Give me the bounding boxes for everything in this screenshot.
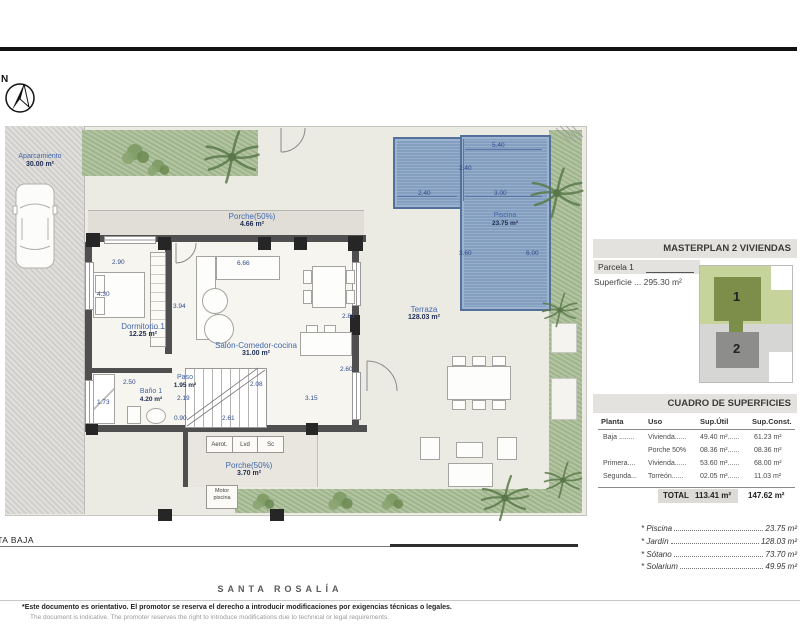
extra-value: 128.03 m² (761, 537, 797, 546)
outdoor-chair (492, 400, 506, 410)
table-cell: 08.36 m²...... (700, 447, 739, 454)
extra-label: * Solarium (641, 562, 678, 571)
dining-table (312, 266, 346, 308)
dimension-label: 2.50 (123, 379, 136, 386)
table-header-uso: Uso (648, 417, 662, 426)
table-cell: 02.05 m²...... (700, 473, 739, 480)
outdoor-chair (452, 400, 466, 410)
table-cell: Baja ........ (603, 434, 635, 441)
table-cell: 49.40 m²...... (700, 434, 739, 441)
bathroom-sink (127, 406, 141, 424)
dotted-leader (680, 561, 764, 569)
cabinet-secadora: Sc (258, 437, 283, 452)
dimension-label: 2.60 (340, 366, 353, 373)
room-area: 128.03 m² (394, 314, 454, 322)
cabinet-aerotermia: Aerot. (207, 437, 233, 452)
extra-row-piscina: * Piscina23.75 m² (641, 523, 797, 533)
stool (306, 325, 318, 333)
brand-name: SANTA ROSALÍA (180, 584, 380, 594)
pillow (95, 297, 105, 315)
table-cell: Segunda... (603, 473, 637, 480)
table-cell: Primera.... (603, 460, 635, 467)
cabinet-lavadora: Lvd (233, 437, 259, 452)
room-name: Dormitorio 1 (98, 322, 188, 331)
pillar (270, 509, 284, 521)
toilet (146, 408, 166, 424)
coffee-table-round (202, 288, 228, 314)
dimension-label: 3.00 (494, 190, 507, 197)
room-area: 4.66 m² (207, 221, 297, 229)
pillar (294, 237, 307, 250)
lounge-coffee-table (456, 442, 483, 458)
room-label-terraza: Terraza 128.03 m² (394, 305, 454, 322)
room-label-salon: Salón-Comedor-cocina 31.00 m² (196, 341, 316, 358)
table-cell: 08.36 m² (754, 447, 782, 454)
pillar (348, 236, 363, 251)
window (352, 372, 361, 420)
pool-shallow-section (393, 137, 464, 209)
dimension-label: 2.19 (177, 395, 190, 402)
outdoor-chair (492, 356, 506, 366)
room-name: Aparcamiento (8, 153, 72, 161)
disclaimer-english: The document is indicative. The promoter… (30, 614, 389, 621)
lounge-armchair (420, 437, 440, 460)
extra-label: * Jardín (641, 537, 669, 546)
window (104, 236, 156, 244)
outdoor-chair (472, 400, 486, 410)
room-name: Paso (168, 374, 202, 382)
wall-bathroom-divider (85, 368, 172, 373)
dotted-leader (674, 523, 763, 531)
dimension-label: 5.40 (492, 142, 505, 149)
room-label-piscina: Piscina 23.75 m² (475, 212, 535, 228)
north-compass-icon: N (1, 74, 34, 112)
floor-plan-title: PLANTA BAJA (0, 535, 34, 545)
extra-label: * Piscina (641, 524, 672, 533)
pillar (306, 423, 318, 435)
pool-motor-box: Motor piscina (206, 485, 238, 509)
room-area: 23.75 m² (475, 220, 535, 227)
room-name: Porche(50%) (207, 212, 297, 221)
superficie-label: Superficie ... 295.30 m² (594, 277, 682, 287)
outdoor-dining-table (447, 366, 511, 400)
dimension-label: 2.90 (112, 259, 125, 266)
lounge-sofa (448, 463, 493, 487)
pillar (258, 237, 271, 250)
dimension-label: 2.83 (342, 313, 355, 320)
room-label-porche-top: Porche(50%) 4.66 m² (207, 212, 297, 229)
pillar (86, 233, 100, 247)
table-header-sup-util: Sup.Útil (700, 417, 728, 426)
extra-value: 23.75 m² (765, 524, 797, 533)
room-name: Baño 1 (126, 388, 176, 396)
dimension-label: 3.94 (173, 303, 186, 310)
parking-area (5, 126, 85, 514)
planter-box (551, 323, 577, 353)
utility-cabinets: Aerot. Lvd Sc (206, 436, 284, 453)
pillar (158, 509, 172, 521)
total-label: TOTAL (663, 491, 689, 500)
table-cell: 68.00 m² (754, 460, 782, 467)
table-cell: 53.60 m²...... (700, 460, 739, 467)
room-label-dormitorio: Dormitorio 1 12.25 m² (98, 322, 188, 339)
dimension-label: 1.73 (97, 399, 110, 406)
room-name: Terraza (394, 305, 454, 314)
table-cell: 61.23 m² (754, 434, 782, 441)
extra-label: * Sótano (641, 550, 672, 559)
coffee-table-round (204, 314, 234, 344)
dimension-label: 2.08 (250, 381, 263, 388)
dimension-label: 2.40 (459, 165, 472, 172)
wall-rear-porch (183, 432, 188, 487)
room-name: Porche(50%) (204, 461, 294, 470)
room-name: Piscina (475, 212, 535, 220)
total-util-value: 113.41 m² (695, 491, 731, 500)
table-cell: Porche 50% (648, 447, 686, 454)
pillar (86, 423, 98, 435)
table-cell: Vivienda...... (648, 434, 686, 441)
dotted-leader (674, 549, 764, 557)
room-label-porche-bottom: Porche(50%) 3.70 m² (204, 461, 294, 478)
north-letter: N (1, 74, 8, 85)
extra-row-jardin: * Jardín128.03 m² (641, 536, 797, 546)
extra-value: 73.70 m² (765, 550, 797, 559)
room-area: 4.20 m² (126, 396, 176, 403)
dimension-label: 6.66 (237, 260, 250, 267)
dimension-label: 2.40 (418, 190, 431, 197)
dimension-label: 3.15 (305, 395, 318, 402)
dimension-label: 6.00 (526, 250, 539, 257)
extra-row-solarium: * Solarium49.95 m² (641, 561, 797, 571)
chair (346, 270, 355, 284)
parcela-underline (646, 272, 694, 273)
chair (346, 290, 355, 304)
room-label-bano: Baño 1 4.20 m² (126, 388, 176, 404)
total-const-value: 147.62 m² (748, 491, 784, 500)
masterplan-header: MASTERPLAN 2 VIVIENDAS (593, 239, 797, 258)
footer-divider (0, 600, 800, 601)
pillar (158, 237, 171, 250)
room-area: 31.00 m² (196, 350, 316, 358)
masterplan-thumbnail-border (699, 265, 793, 383)
stool (324, 325, 336, 333)
parcela-label: Parcela 1 (598, 262, 634, 272)
floor-plan-page: { "compass": {"north_label": "N"}, "plan… (0, 0, 800, 640)
dimension-label: 2.61 (222, 415, 235, 422)
table-cell: Torreón...... (648, 473, 683, 480)
dotted-leader (671, 536, 759, 544)
room-area: 12.25 m² (98, 331, 188, 339)
extra-value: 49.95 m² (765, 562, 797, 571)
outdoor-chair (472, 356, 486, 366)
table-header-rule (598, 429, 795, 430)
cuadro-header: CUADRO DE SUPERFICIES (593, 394, 797, 413)
garden-strip-top (82, 130, 258, 176)
garden-strip-right (549, 130, 582, 513)
bottom-rule-thick (390, 544, 578, 547)
table-header-planta: Planta (601, 417, 624, 426)
dimension-label: 3.60 (459, 250, 472, 257)
table-cell: Vivienda...... (648, 460, 686, 467)
dimension-label: 4.30 (97, 291, 110, 298)
table-header-sup-const: Sup.Const. (752, 417, 792, 426)
room-area: 3.70 m² (204, 470, 294, 478)
pool-dimension-line (465, 149, 542, 150)
table-total-rule (598, 487, 795, 488)
chair (303, 290, 312, 304)
outdoor-chair (452, 356, 466, 366)
room-label-aparcamiento: Aparcamiento 30.00 m² (8, 153, 72, 169)
top-divider-rule (0, 47, 797, 51)
chair (303, 270, 312, 284)
room-area: 30.00 m² (8, 161, 72, 169)
dimension-label: 0.90 (174, 415, 187, 422)
table-cell: 11.03 m² (754, 473, 781, 480)
planter-box (551, 378, 577, 420)
disclaimer-spanish: *Este documento es orientativo. El promo… (22, 604, 452, 611)
extra-row-sotano: * Sótano73.70 m² (641, 549, 797, 559)
room-name: Salón-Comedor-cocina (196, 341, 316, 350)
lounge-armchair (497, 437, 517, 460)
